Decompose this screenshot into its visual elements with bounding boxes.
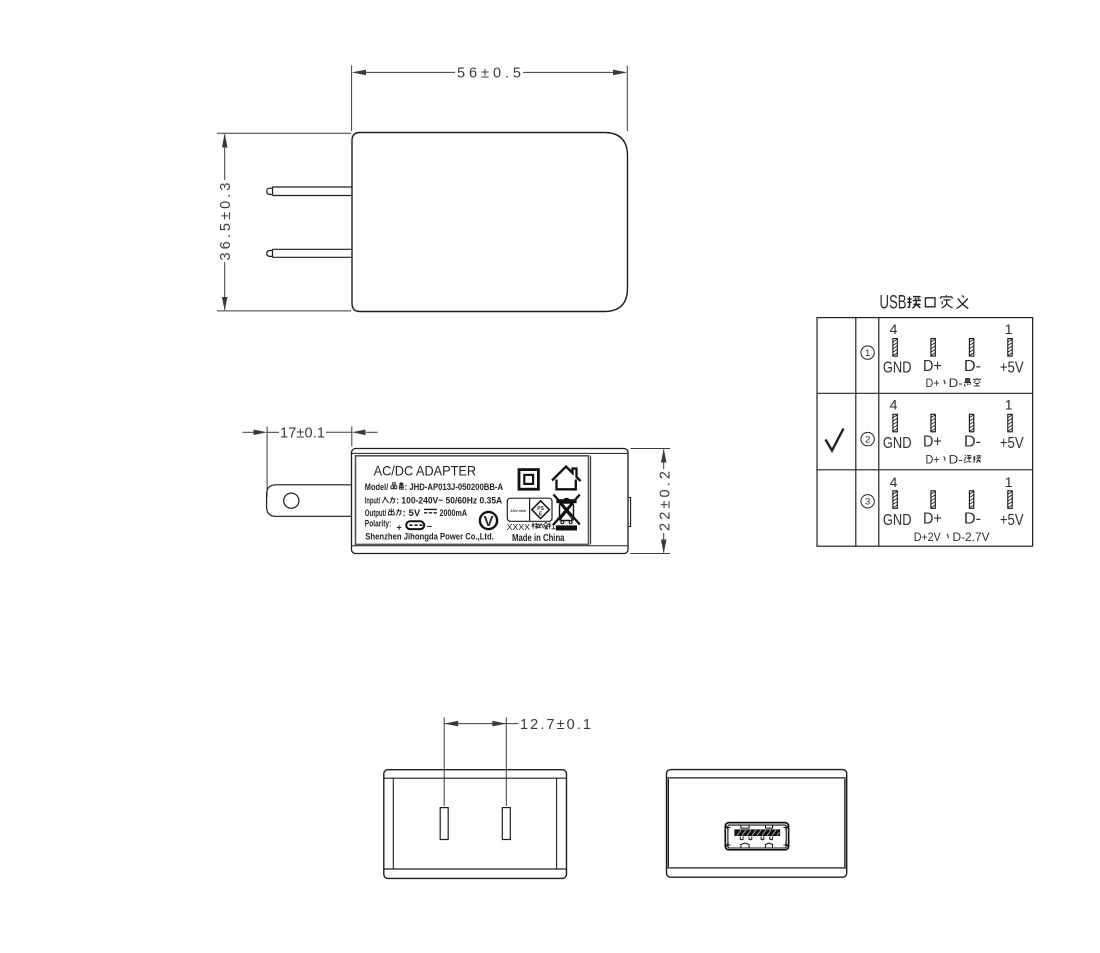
svg-text:Model/: Model/ (365, 482, 389, 493)
svg-text:kOv mek: kOv mek (511, 508, 527, 513)
svg-text:D+: D+ (926, 455, 940, 467)
svg-text:D+: D+ (923, 434, 942, 451)
svg-text:D-2.7V: D-2.7V (953, 532, 990, 544)
svg-text:GND: GND (883, 512, 912, 529)
svg-text:D-: D- (964, 511, 981, 528)
svg-text:1: 1 (1005, 321, 1013, 337)
svg-text:GND: GND (883, 359, 912, 376)
svg-text:GND: GND (883, 435, 912, 452)
svg-text:−: − (427, 522, 432, 532)
svg-text:D-: D- (949, 455, 963, 467)
svg-text:: 5V: : 5V (403, 508, 421, 519)
svg-text:: 100-240V~ 50/60Hz 0.35A: : 100-240V~ 50/60Hz 0.35A (396, 496, 502, 507)
svg-text:4: 4 (890, 474, 898, 490)
svg-text:17±0.1: 17±0.1 (280, 426, 325, 442)
svg-text:: JHD-AP013J-050200BB-A: : JHD-AP013J-050200BB-A (405, 482, 504, 493)
svg-text:XXXX: XXXX (507, 522, 531, 532)
svg-text:1: 1 (1005, 474, 1013, 490)
svg-text:+5V: +5V (1000, 359, 1024, 376)
svg-text:+5V: +5V (1000, 512, 1024, 529)
svg-text:D+: D+ (923, 511, 942, 528)
svg-text:Made in China: Made in China (512, 533, 565, 544)
svg-text:1: 1 (865, 348, 870, 359)
svg-text:4: 4 (890, 397, 898, 413)
svg-text:3: 3 (865, 497, 870, 508)
svg-text:Input/: Input/ (365, 496, 381, 507)
svg-text:+5V: +5V (1000, 435, 1024, 452)
svg-text:D-: D- (964, 358, 981, 375)
svg-text:Polarity:: Polarity: (365, 518, 392, 529)
svg-text:USB: USB (880, 293, 907, 314)
svg-text:1: 1 (1005, 397, 1013, 413)
svg-text:4: 4 (890, 321, 898, 337)
svg-text:Output/: Output/ (365, 508, 387, 519)
svg-text:D-: D- (949, 378, 963, 390)
svg-text:2: 2 (865, 435, 870, 446)
svg-text:Shenzhen Jihongda Power Co.,Lt: Shenzhen Jihongda Power Co.,Ltd. (365, 532, 494, 543)
svg-text:V: V (483, 513, 493, 530)
svg-text:AC/DC ADAPTER: AC/DC ADAPTER (374, 463, 477, 479)
svg-text:2000mA: 2000mA (440, 508, 468, 519)
svg-text:D+2V: D+2V (914, 532, 941, 544)
svg-text:D-: D- (964, 434, 981, 451)
svg-text:D+: D+ (926, 378, 940, 390)
svg-text:D+: D+ (923, 358, 942, 375)
